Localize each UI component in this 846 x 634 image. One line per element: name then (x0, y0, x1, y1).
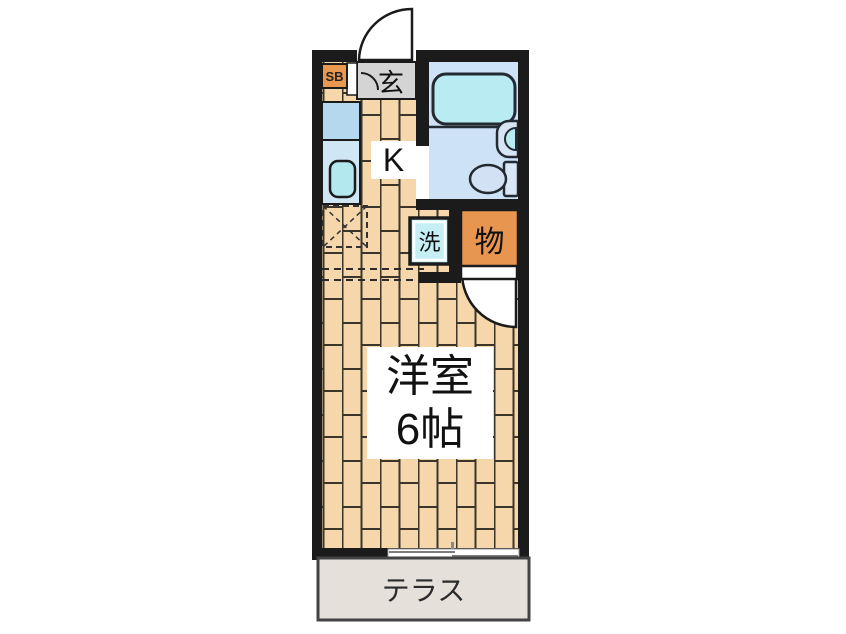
laundry-label: 洗 (410, 218, 449, 264)
main-room-name: 洋室 (386, 350, 474, 403)
floorplan-image: SB 玄 K 洗 物 洋室 6帖 テラス (0, 0, 846, 634)
floorplan-drawing (0, 0, 846, 634)
storage-label: 物 (461, 210, 518, 267)
main-room-size: 6帖 (396, 403, 464, 456)
bathroom-door-opening (416, 146, 429, 199)
shoe-box-label: SB (322, 64, 347, 88)
terrace-label: テラス (318, 558, 529, 620)
toilet-bowl (470, 165, 506, 193)
entrance-label: 玄 (366, 66, 416, 96)
kitchen-counter (322, 102, 360, 204)
kitchen-sink (330, 161, 355, 197)
main-room-label: 洋室 6帖 (367, 347, 493, 459)
entrance-step (347, 63, 357, 95)
bathroom (429, 62, 518, 199)
entrance-door-swing (359, 9, 412, 60)
kitchen-label: K (371, 141, 416, 179)
bathtub (433, 74, 515, 124)
